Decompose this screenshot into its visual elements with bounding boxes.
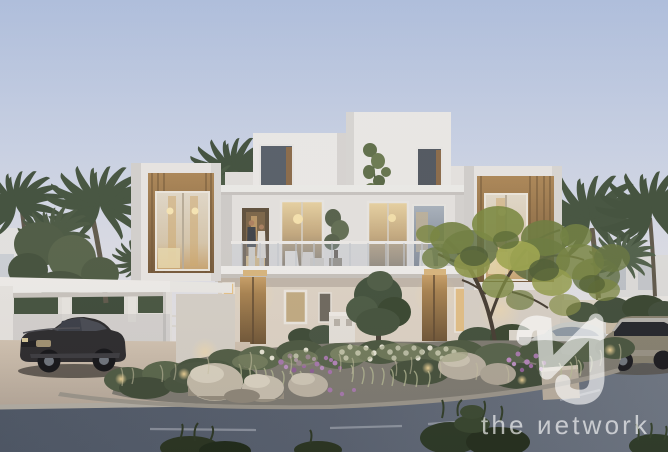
- svg-text:the иetwork: the иetwork: [481, 410, 651, 440]
